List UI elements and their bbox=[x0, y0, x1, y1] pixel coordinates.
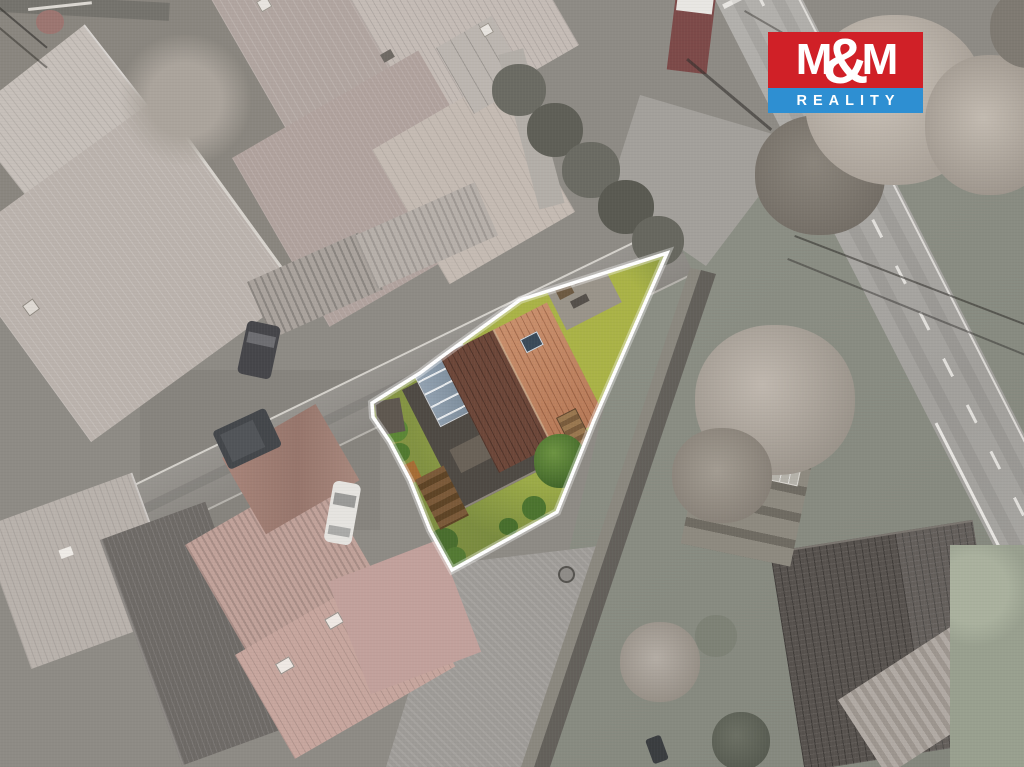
tree bbox=[620, 622, 700, 702]
car-windshield bbox=[333, 492, 357, 508]
manhole-cover bbox=[558, 566, 575, 583]
logo-ampersand: & bbox=[822, 33, 868, 89]
truck-cab bbox=[676, 0, 714, 15]
bare-tree bbox=[115, 35, 255, 165]
dormer bbox=[275, 656, 295, 674]
realty-logo: M & M REALITY bbox=[768, 32, 923, 113]
garden-bush bbox=[540, 514, 557, 531]
garden-bush bbox=[389, 443, 410, 462]
garden-clutter bbox=[570, 294, 590, 309]
hedgerow bbox=[950, 545, 1024, 767]
tree bbox=[712, 712, 770, 767]
car-windshield bbox=[246, 331, 276, 348]
van-roof-highlight bbox=[220, 420, 265, 462]
car-rear-window bbox=[328, 525, 351, 538]
garden-bush bbox=[499, 518, 518, 535]
flower-bed bbox=[404, 498, 411, 505]
garden-bush bbox=[534, 434, 586, 488]
aerial-photo: M & M REALITY bbox=[0, 0, 1024, 767]
realty-logo-mark: M & M bbox=[768, 32, 923, 88]
roof-skylight bbox=[58, 546, 73, 559]
bush bbox=[695, 615, 737, 657]
bush bbox=[36, 10, 64, 34]
tree bbox=[672, 428, 772, 523]
